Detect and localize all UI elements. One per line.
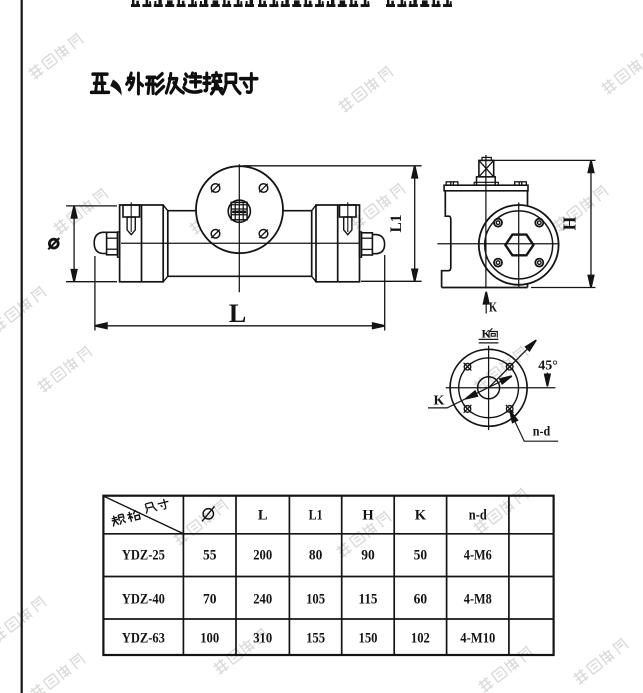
svg-text:55: 55 bbox=[203, 548, 217, 564]
svg-text:K: K bbox=[415, 508, 427, 524]
svg-text:YDZ-63: YDZ-63 bbox=[122, 631, 165, 647]
svg-text:105: 105 bbox=[306, 592, 325, 608]
svg-text:YDZ-25: YDZ-25 bbox=[122, 548, 165, 564]
svg-text:K: K bbox=[434, 394, 445, 409]
svg-text:K: K bbox=[482, 327, 492, 341]
svg-text:4-M8: 4-M8 bbox=[464, 592, 492, 608]
svg-text:100: 100 bbox=[200, 631, 219, 647]
svg-text:H: H bbox=[560, 216, 580, 230]
svg-text:102: 102 bbox=[411, 631, 430, 647]
svg-text:155: 155 bbox=[306, 631, 325, 647]
svg-text:L: L bbox=[229, 299, 246, 328]
svg-text:45°: 45° bbox=[538, 359, 558, 374]
svg-text:80: 80 bbox=[309, 548, 323, 564]
svg-text:n-d: n-d bbox=[533, 424, 551, 439]
svg-text:L1: L1 bbox=[309, 508, 323, 524]
svg-text:L: L bbox=[258, 508, 268, 524]
svg-text:L1: L1 bbox=[388, 214, 405, 232]
svg-text:70: 70 bbox=[203, 592, 217, 608]
svg-text:310: 310 bbox=[253, 631, 272, 647]
svg-text:K: K bbox=[489, 300, 497, 315]
svg-text:YDZ-40: YDZ-40 bbox=[122, 592, 165, 608]
svg-text:4-M10: 4-M10 bbox=[460, 631, 495, 647]
svg-text:4-M6: 4-M6 bbox=[464, 548, 492, 564]
svg-text:115: 115 bbox=[359, 592, 378, 608]
svg-text:50: 50 bbox=[414, 548, 428, 564]
svg-text:n-d: n-d bbox=[469, 508, 487, 524]
svg-text:200: 200 bbox=[253, 548, 272, 564]
svg-text:90: 90 bbox=[361, 548, 375, 564]
svg-text:H: H bbox=[362, 508, 374, 524]
svg-text:150: 150 bbox=[359, 631, 378, 647]
svg-text:240: 240 bbox=[253, 592, 272, 608]
svg-text:60: 60 bbox=[414, 592, 428, 608]
